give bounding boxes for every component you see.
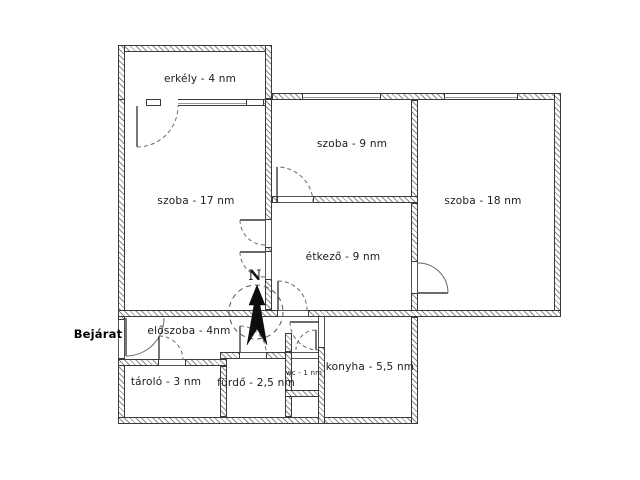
floorplan-canvas: erkély - 4 nm szoba - 17 nm szoba - 9 nm…	[0, 0, 640, 480]
room-label-furdo: fürdő - 2,5 nm	[217, 377, 295, 389]
north-compass	[229, 285, 283, 345]
door-szoba18	[418, 263, 448, 293]
room-label-eloszoba: előszoba - 4nm	[147, 325, 230, 337]
doors-and-compass-overlay	[0, 0, 640, 480]
room-label-szoba-9: szoba - 9 nm	[317, 138, 387, 150]
room-label-tarolo: tároló - 3 nm	[131, 376, 201, 388]
room-label-etkezo: étkező - 9 nm	[306, 251, 381, 263]
room-label-wc: wc - 1 nm	[286, 369, 322, 377]
room-label-erkely: erkély - 4 nm	[164, 73, 236, 85]
compass-north-label: N	[249, 268, 262, 284]
door-szoba9	[277, 167, 313, 203]
door-szoba17-upper	[240, 220, 265, 245]
door-tarolo	[159, 336, 183, 360]
door-balcony	[137, 106, 178, 147]
north-arrow-icon	[247, 285, 267, 345]
entrance-label: Bejárat	[74, 327, 123, 341]
room-label-konyha: konyha - 5,5 nm	[326, 361, 414, 373]
room-label-szoba-17: szoba - 17 nm	[157, 195, 234, 207]
room-label-szoba-18: szoba - 18 nm	[444, 195, 521, 207]
door-konyha	[290, 322, 318, 350]
